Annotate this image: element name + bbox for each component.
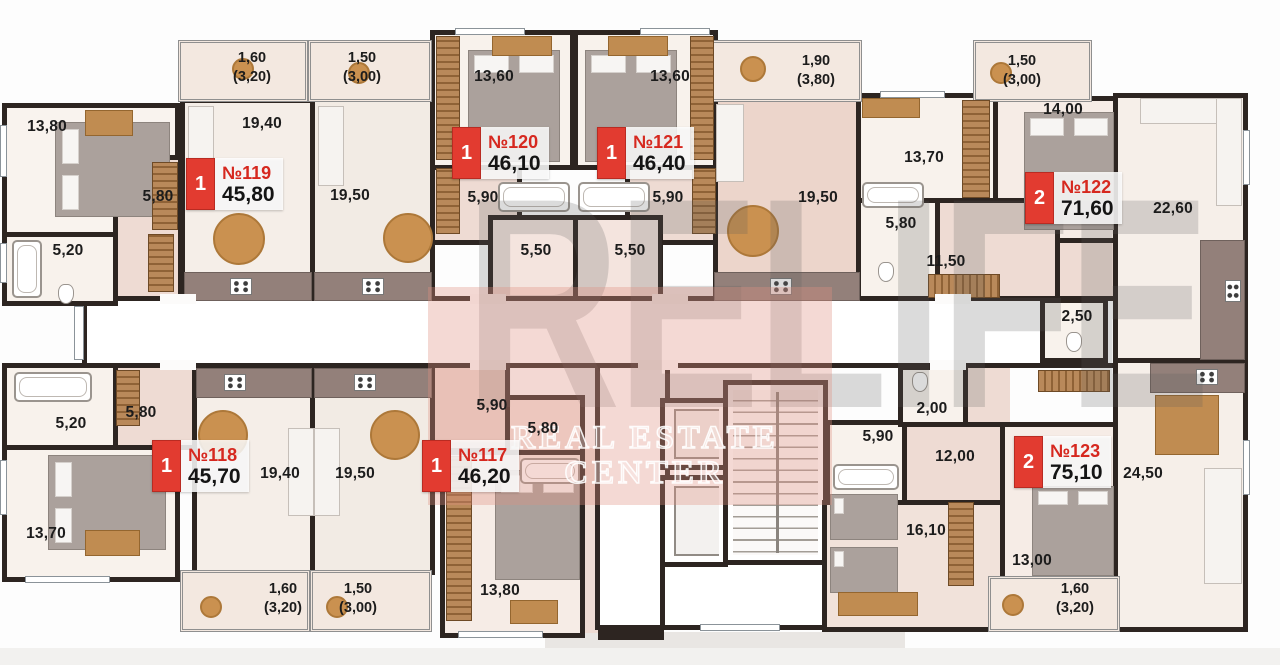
dim-label: 13,80 xyxy=(480,582,520,600)
pillow xyxy=(1038,491,1068,505)
pillow xyxy=(834,551,844,568)
bathtub-icon xyxy=(14,372,92,402)
floor-plan: RELIFE REAL ESTATE CENTER 13,80 19,40 5,… xyxy=(0,0,1280,665)
balcony-table-icon xyxy=(200,596,222,618)
balcony-label: 1,60 (3,20) xyxy=(1056,580,1094,618)
corridor xyxy=(82,296,1147,368)
pillow xyxy=(55,462,72,497)
balcony-area: (3,00) xyxy=(343,68,381,87)
door-opening xyxy=(470,294,506,304)
desk-icon xyxy=(862,98,920,118)
dim-label: 5,20 xyxy=(56,415,87,433)
unit-badge-121[interactable]: 1 №121 46,40 xyxy=(597,127,694,179)
stove-icon xyxy=(354,374,376,391)
elevator-car-icon xyxy=(674,409,719,459)
bathtub-icon xyxy=(12,240,42,298)
rooms-count-badge: 1 xyxy=(186,158,215,210)
single-bed-icon xyxy=(830,547,898,593)
core-vestibule xyxy=(595,363,670,630)
unit-number: №121 xyxy=(633,132,686,152)
balcony-table-icon xyxy=(740,56,766,82)
dim-label: 11,50 xyxy=(927,253,966,271)
desk-icon xyxy=(608,36,668,56)
dim-label: 14,00 xyxy=(1043,101,1083,119)
door-opening xyxy=(470,360,506,370)
pillow xyxy=(62,175,79,210)
dim-label: 19,40 xyxy=(242,115,282,133)
dim-label: 5,90 xyxy=(468,189,499,207)
stove-icon xyxy=(1196,369,1218,385)
stove-icon xyxy=(362,278,384,295)
stove-icon xyxy=(1225,280,1241,302)
door-opening xyxy=(160,360,196,370)
unit-number: №117 xyxy=(458,445,511,465)
pillow xyxy=(519,55,553,73)
window xyxy=(0,460,7,515)
desk-icon xyxy=(510,600,558,624)
stove-icon xyxy=(770,278,792,295)
window xyxy=(455,28,525,35)
balcony-area: (3,00) xyxy=(1003,71,1041,90)
balcony-width: 1,50 xyxy=(339,580,377,599)
unit-badge-117[interactable]: 1 №117 46,20 xyxy=(422,440,519,492)
balcony-width: 1,60 xyxy=(233,49,271,68)
pillow xyxy=(591,55,625,73)
single-bed-icon xyxy=(830,494,898,540)
sofa-icon xyxy=(716,104,744,182)
dining-table-icon xyxy=(383,213,433,263)
wardrobe-icon xyxy=(690,36,714,160)
unit-area: 46,40 xyxy=(633,152,686,176)
rooms-count-badge: 2 xyxy=(1025,172,1054,224)
unit-info: №120 46,10 xyxy=(481,127,549,179)
window xyxy=(458,631,543,638)
dim-label: 19,50 xyxy=(330,187,370,205)
pillow xyxy=(1074,118,1107,137)
balcony-area: (3,20) xyxy=(233,68,271,87)
dim-label: 13,00 xyxy=(1012,552,1052,570)
window xyxy=(0,243,7,283)
dim-label: 5,50 xyxy=(521,242,552,260)
unit-badge-118[interactable]: 1 №118 45,70 xyxy=(152,440,249,492)
sofa-icon xyxy=(1204,468,1242,584)
balcony-label: 1,60 (3,20) xyxy=(233,49,271,87)
balcony-width: 1,90 xyxy=(797,52,835,71)
bathtub-icon xyxy=(498,182,570,212)
elevator-car-icon xyxy=(674,486,719,556)
bathtub-icon xyxy=(520,458,580,484)
unit-area: 45,80 xyxy=(222,183,275,207)
dim-label: 24,50 xyxy=(1123,465,1163,483)
dining-table-icon xyxy=(1155,395,1219,455)
unit-number: №123 xyxy=(1050,441,1103,461)
dim-label: 5,80 xyxy=(528,420,559,438)
dim-label: 5,90 xyxy=(653,189,684,207)
kitchen-counter xyxy=(196,368,312,398)
stairwell xyxy=(723,380,828,565)
dim-label: 2,50 xyxy=(1062,308,1093,326)
dim-label: 13,80 xyxy=(27,118,67,136)
dim-label: 5,80 xyxy=(126,404,157,422)
balcony-area: (3,80) xyxy=(797,71,835,90)
balcony-table-icon xyxy=(1002,594,1024,616)
unit-info: №123 75,10 xyxy=(1043,436,1111,488)
balcony xyxy=(700,40,862,102)
balcony-label: 1,50 (3,00) xyxy=(1003,52,1041,90)
dining-table-icon xyxy=(370,410,420,460)
bathtub-icon xyxy=(578,182,650,212)
dim-label: 5,80 xyxy=(143,188,174,206)
toilet-icon xyxy=(1066,332,1082,352)
desk-icon xyxy=(85,110,133,136)
unit-area: 45,70 xyxy=(188,465,241,489)
unit-info: №121 46,40 xyxy=(626,127,694,179)
dim-label: 19,50 xyxy=(335,465,375,483)
wardrobe-icon xyxy=(962,100,990,198)
door-opening xyxy=(160,294,196,304)
elevator-shaft xyxy=(660,475,728,567)
balcony-label: 1,50 (3,00) xyxy=(343,49,381,87)
rooms-count-badge: 2 xyxy=(1014,436,1043,488)
entrance-porch xyxy=(598,628,664,640)
dim-label: 13,60 xyxy=(474,68,514,86)
unit-info: №122 71,60 xyxy=(1054,172,1122,224)
window xyxy=(640,28,710,35)
balcony-label: 1,50 (3,00) xyxy=(339,580,377,618)
door-opening xyxy=(638,360,678,370)
desk-icon xyxy=(85,530,140,556)
desk-icon xyxy=(492,36,552,56)
unit-area: 71,60 xyxy=(1061,197,1114,221)
dim-label: 19,50 xyxy=(798,189,838,207)
unit-area: 46,20 xyxy=(458,465,511,489)
window xyxy=(880,91,945,98)
pillow xyxy=(1030,118,1063,137)
wardrobe-icon xyxy=(692,168,716,234)
wardrobe-icon xyxy=(948,502,974,586)
balcony-area: (3,20) xyxy=(1056,599,1094,618)
unit-info: №119 45,80 xyxy=(215,158,283,210)
rooms-count-badge: 1 xyxy=(597,127,626,179)
unit-number: №119 xyxy=(222,163,275,183)
balcony-label: 1,90 (3,80) xyxy=(797,52,835,90)
pillow xyxy=(834,498,844,515)
dim-label: 22,60 xyxy=(1153,200,1193,218)
unit-badge-122[interactable]: 2 №122 71,60 xyxy=(1025,172,1122,224)
door-opening xyxy=(652,294,688,304)
dim-label: 16,10 xyxy=(906,522,946,540)
pillow xyxy=(1078,491,1108,505)
balcony-width: 1,50 xyxy=(1003,52,1041,71)
dim-label: 13,70 xyxy=(904,149,944,167)
rooms-count-badge: 1 xyxy=(152,440,181,492)
dim-label: 5,80 xyxy=(886,215,917,233)
balcony-area: (3,20) xyxy=(264,599,302,618)
dim-label: 19,40 xyxy=(260,465,300,483)
sofa-icon xyxy=(1216,98,1242,206)
rooms-count-badge: 1 xyxy=(422,440,451,492)
door-opening xyxy=(935,294,971,304)
wardrobe-icon xyxy=(1038,370,1110,392)
bathtub-icon xyxy=(833,464,899,490)
window xyxy=(1243,130,1250,185)
sofa-icon xyxy=(318,106,344,186)
toilet-icon xyxy=(912,372,928,392)
dining-table-icon xyxy=(213,213,265,265)
dim-label: 13,60 xyxy=(650,68,690,86)
unit-badge-120[interactable]: 1 №120 46,10 xyxy=(452,127,549,179)
stove-icon xyxy=(230,278,252,295)
window xyxy=(25,576,110,583)
toilet-icon xyxy=(58,284,74,304)
door-opening xyxy=(930,360,966,370)
balcony-width: 1,60 xyxy=(264,580,302,599)
unit-area: 46,10 xyxy=(488,152,541,176)
unit-number: №122 xyxy=(1061,177,1114,197)
dim-label: 5,90 xyxy=(863,428,894,446)
dim-label: 12,00 xyxy=(935,448,975,466)
balcony-width: 1,60 xyxy=(1056,580,1094,599)
ground-strip xyxy=(0,648,1280,665)
unit-number: №120 xyxy=(488,132,541,152)
balcony-area: (3,00) xyxy=(339,599,377,618)
dim-label: 2,00 xyxy=(917,400,948,418)
elevator-shaft xyxy=(660,398,728,470)
stairs-rail xyxy=(776,392,779,553)
stove-icon xyxy=(224,374,246,391)
dim-label: 5,90 xyxy=(477,397,508,415)
unit-info: №117 46,20 xyxy=(451,440,519,492)
window xyxy=(74,306,84,360)
dim-label: 13,70 xyxy=(26,525,66,543)
wardrobe-icon xyxy=(148,234,174,292)
unit-number: №118 xyxy=(188,445,241,465)
dim-label: 5,20 xyxy=(53,242,84,260)
balcony-label: 1,60 (3,20) xyxy=(264,580,302,618)
unit-area: 75,10 xyxy=(1050,461,1103,485)
dining-table-icon xyxy=(727,205,779,257)
toilet-icon xyxy=(878,262,894,282)
hall-floor-filler xyxy=(965,368,1010,428)
dim-label: 5,50 xyxy=(615,242,646,260)
rooms-count-badge: 1 xyxy=(452,127,481,179)
bathtub-icon xyxy=(862,182,924,208)
window xyxy=(1243,440,1250,495)
balcony-width: 1,50 xyxy=(343,49,381,68)
core-lobby xyxy=(660,560,828,630)
window xyxy=(700,624,780,631)
unit-badge-119[interactable]: 1 №119 45,80 xyxy=(186,158,283,210)
desk-icon xyxy=(838,592,918,616)
unit-badge-123[interactable]: 2 №123 75,10 xyxy=(1014,436,1111,488)
window xyxy=(0,125,7,177)
unit-info: №118 45,70 xyxy=(181,440,249,492)
